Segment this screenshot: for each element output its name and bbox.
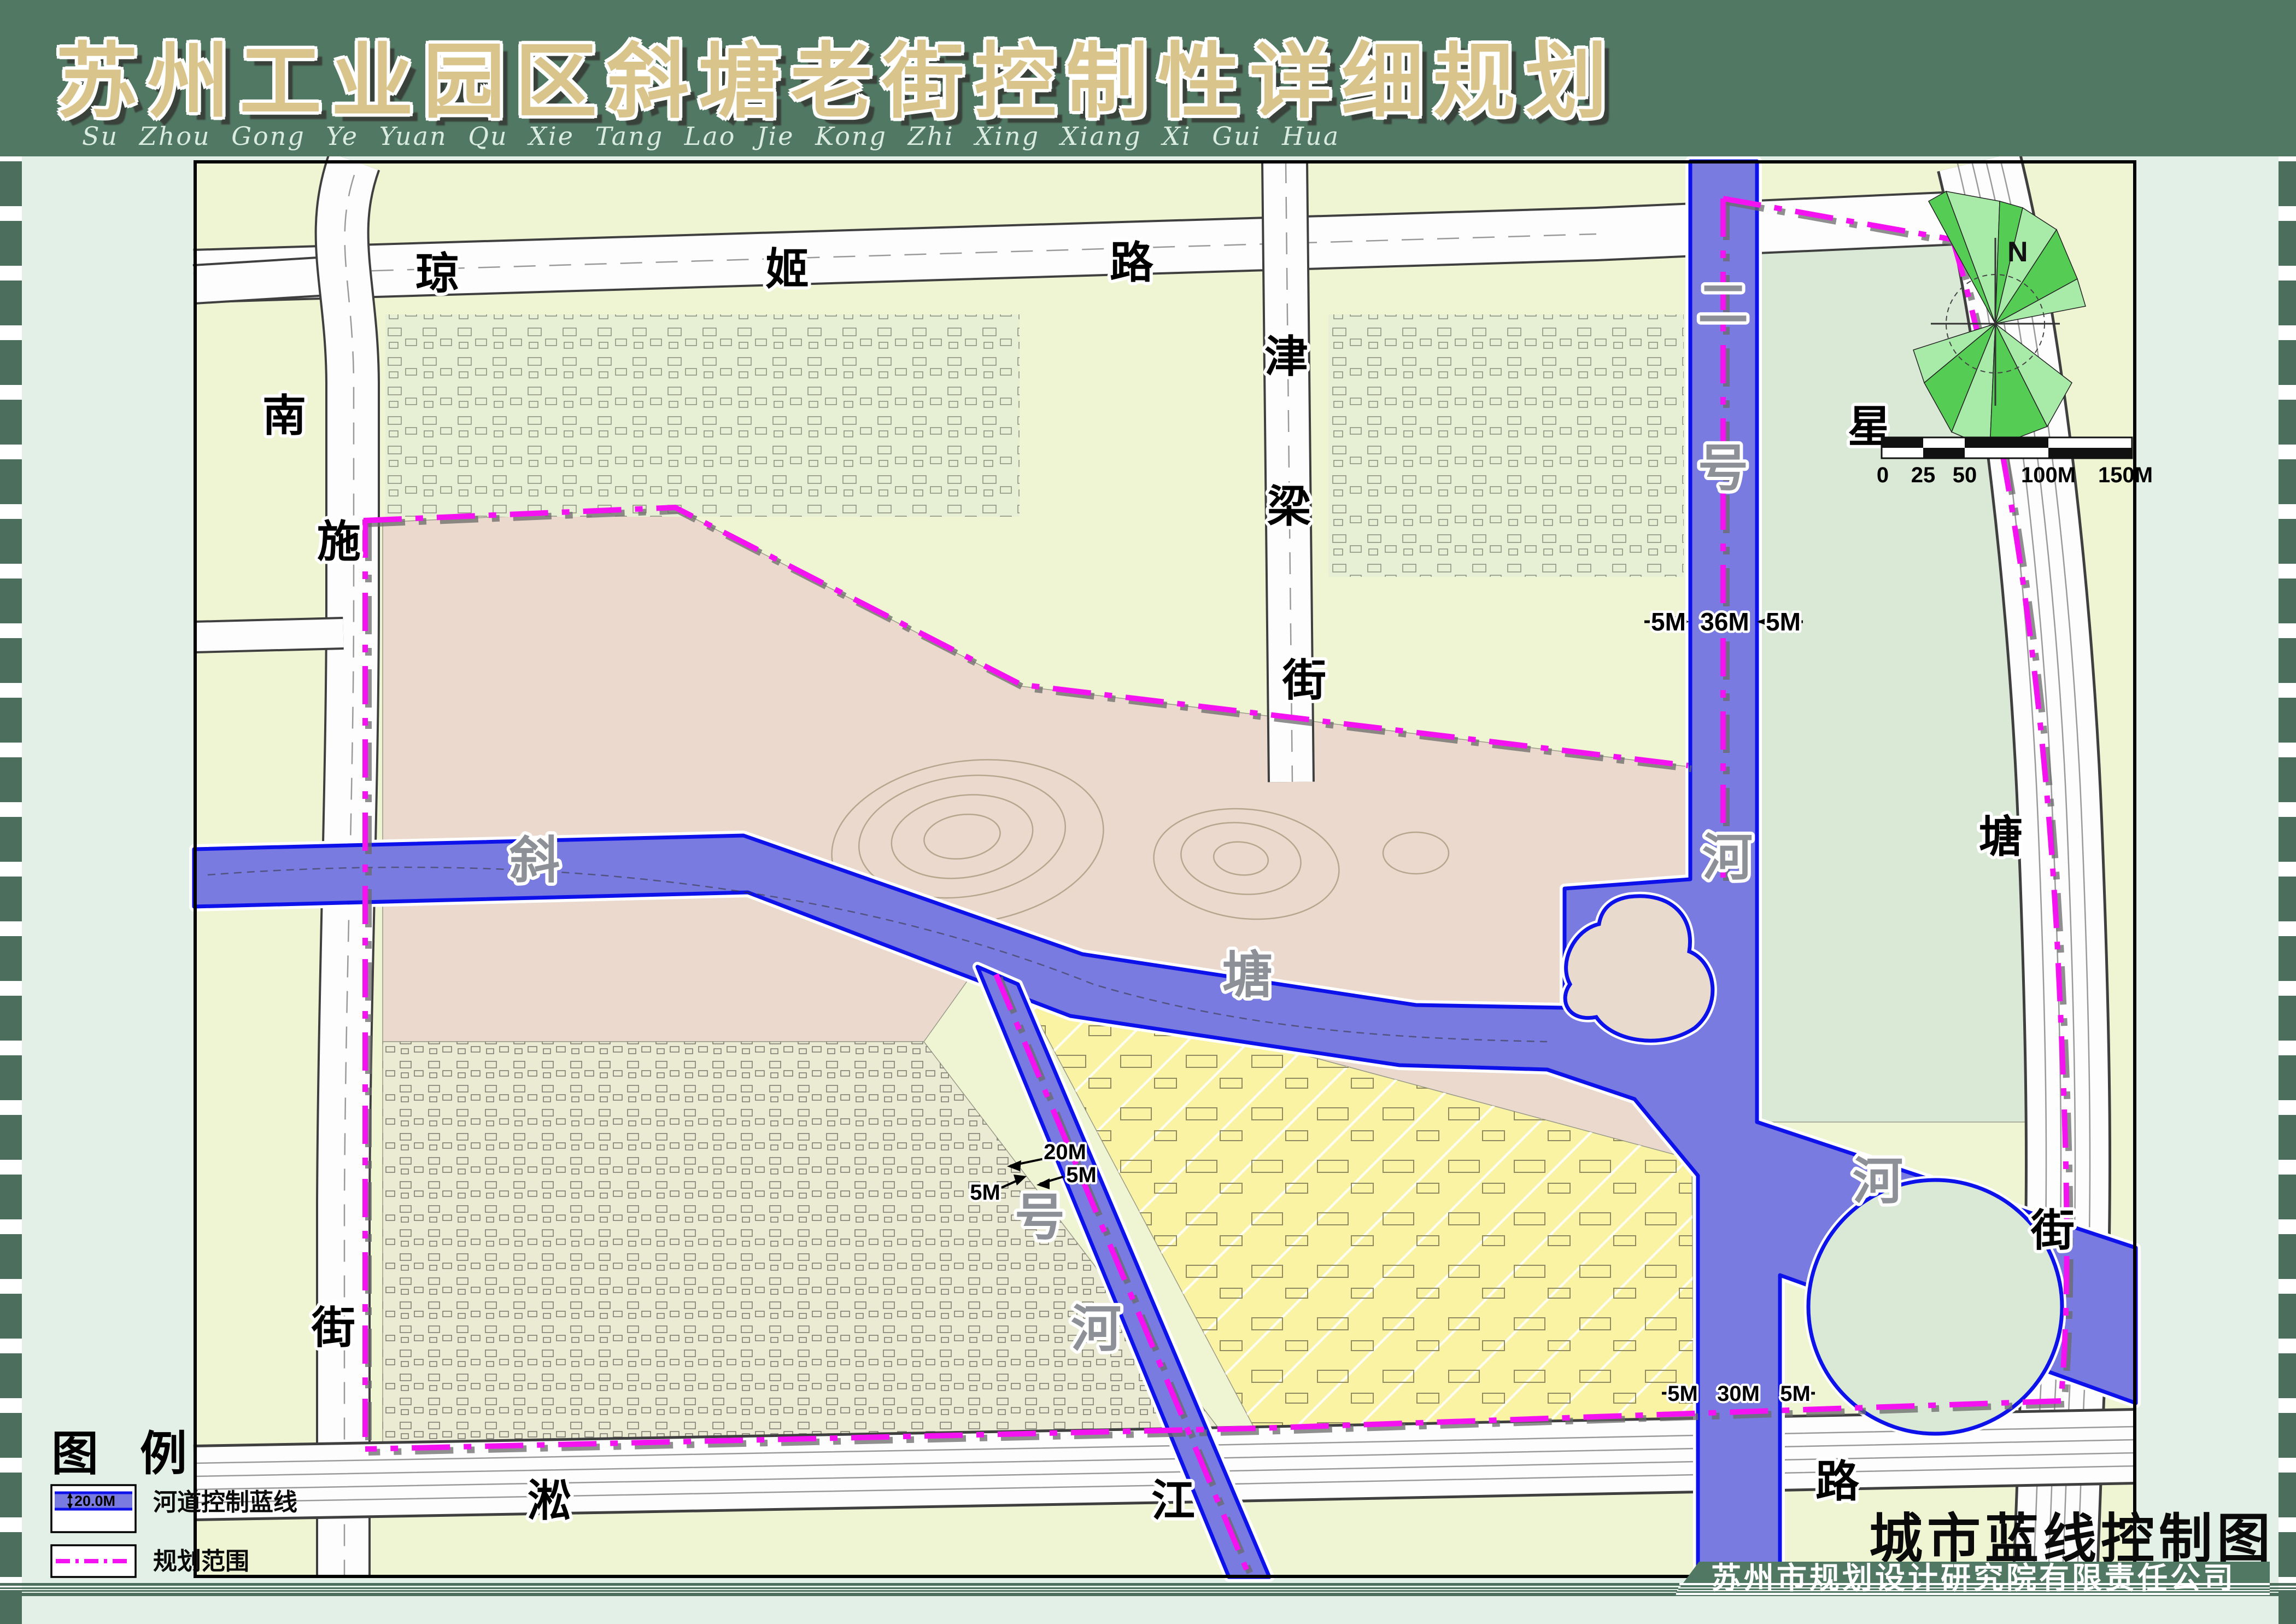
- company-band: 苏州市规划设计研究院有限责任公司: [1674, 1562, 2270, 1596]
- label-yihao-1: 号: [1015, 1190, 1065, 1246]
- legend-title: 图 例: [51, 1428, 201, 1480]
- label-xietang-2: 塘: [1222, 948, 1273, 1003]
- right-checker-border: [2279, 156, 2296, 1624]
- dim-36m: 36M: [1700, 607, 1749, 636]
- label-xingtang-3: 街: [2030, 1206, 2075, 1255]
- label-songjiang-3: 路: [1815, 1457, 1860, 1506]
- label-nanshi-1: 南: [262, 392, 306, 440]
- dim-5m-b: 5M: [970, 1181, 1000, 1205]
- legend-river-dim: 20.0M: [74, 1493, 115, 1509]
- header-band: 苏州工业园区斜塘老街控制性详细规划 Su Zhou Gong Ye Yuan Q…: [0, 0, 2296, 156]
- map-canvas: 5M 36M 5M 20M 5M 5M 5M 30M 5M 琼 姬 路 南: [0, 0, 2296, 1624]
- label-jinliang-3: 街: [1282, 656, 1326, 705]
- dim-5m-left: 5M: [1651, 607, 1686, 636]
- label-nanshi-3: 街: [311, 1304, 355, 1352]
- label-xietang-3: 河: [1853, 1154, 1903, 1210]
- residential-nw-buildings: [385, 314, 1020, 517]
- label-erhao-2: 号: [1698, 441, 1748, 496]
- label-jinliang-2: 梁: [1267, 482, 1311, 531]
- map-area: 5M 36M 5M 20M 5M 5M 5M 30M 5M 琼 姬 路 南: [194, 161, 2153, 1580]
- river-bay-park: [1808, 1180, 2062, 1434]
- scale-tick-150: 150M: [2098, 463, 2153, 487]
- label-qiongji-2: 姬: [765, 245, 809, 294]
- scale-tick-25: 25: [1911, 463, 1936, 487]
- label-songjiang-1: 淞: [528, 1476, 571, 1525]
- legend-river-label: 河道控制蓝线: [153, 1489, 297, 1516]
- dim-5m-s1: 5M: [1667, 1382, 1698, 1406]
- residential-ne-buildings: [1328, 314, 1684, 577]
- left-checker-border: [0, 156, 22, 1624]
- label-nanshi-2: 施: [317, 517, 361, 566]
- dim-5m-a: 5M: [1066, 1163, 1097, 1187]
- north-label: N: [2007, 236, 2028, 268]
- label-jinliang-1: 津: [1264, 332, 1308, 381]
- legend-boundary-label: 规划范围: [153, 1548, 249, 1575]
- map-sheet-title: 城市蓝线控制图: [1869, 1510, 2275, 1569]
- label-erhao-3: 河: [1702, 830, 1753, 886]
- dim-5m-s2: 5M: [1780, 1382, 1811, 1406]
- label-qiongji-3: 路: [1110, 238, 1154, 287]
- scale-tick-50: 50: [1953, 463, 1977, 487]
- legend-item-boundary: 规划范围: [51, 1545, 249, 1577]
- scale-tick-100: 100M: [2021, 463, 2076, 487]
- label-yihao-2: 河: [1071, 1301, 1121, 1357]
- dim-20m: 20M: [1044, 1140, 1086, 1164]
- label-xietang-1: 斜: [509, 833, 560, 889]
- label-xingtang-2: 塘: [1979, 813, 2023, 861]
- dim-5m-right: 5M: [1766, 607, 1801, 636]
- label-erhao-1: 二: [1698, 277, 1748, 332]
- scale-tick-0: 0: [1877, 463, 1889, 487]
- label-qiongji-1: 琼: [415, 249, 459, 298]
- road-branch-w: [194, 633, 343, 637]
- label-songjiang-2: 江: [1151, 1476, 1195, 1525]
- company-name: 苏州市规划设计研究院有限责任公司: [1711, 1562, 2236, 1595]
- page-title: 苏州工业园区斜塘老街控制性详细规划: [56, 15, 1617, 134]
- dim-30m: 30M: [1717, 1382, 1760, 1406]
- page-subtitle-pinyin: Su Zhou Gong Ye Yuan Qu Xie Tang Lao Jie…: [82, 121, 1340, 151]
